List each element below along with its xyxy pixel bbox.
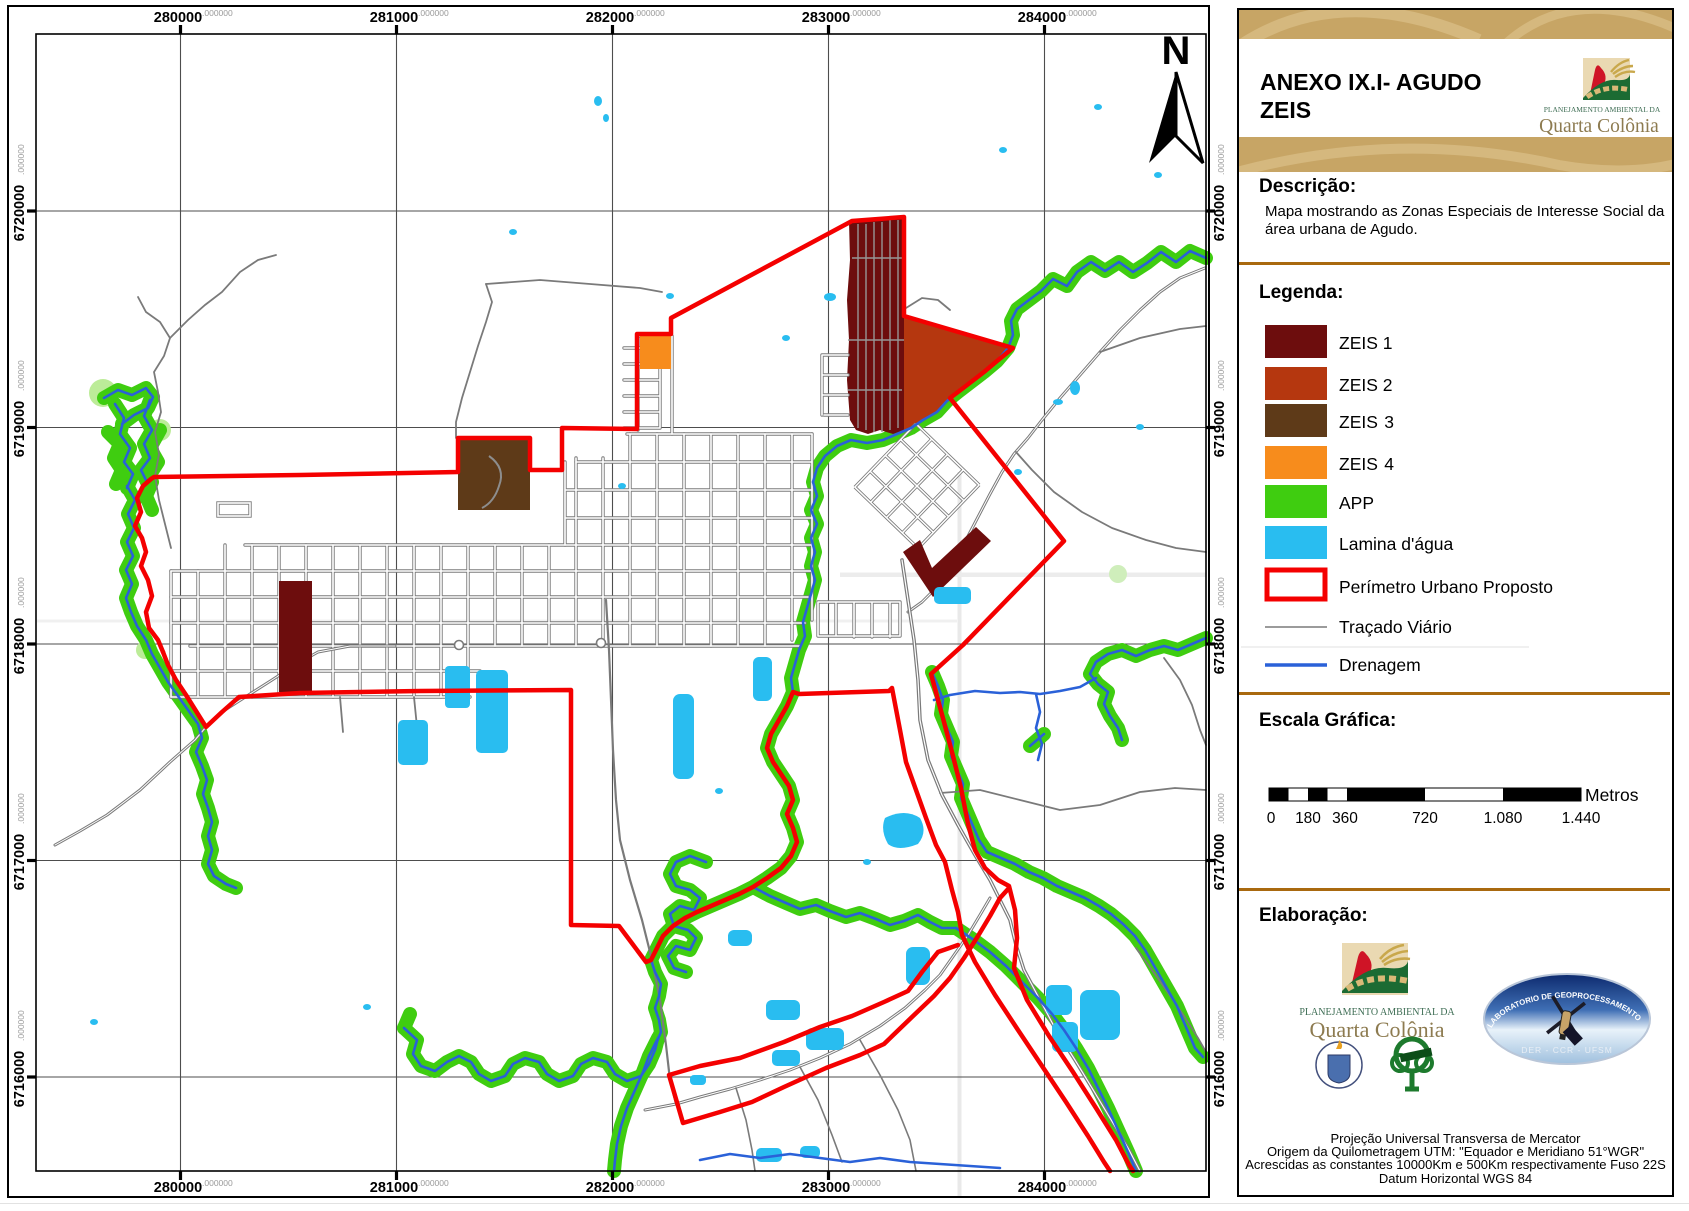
svg-text:ZEIS 3: ZEIS 3	[1339, 412, 1394, 432]
svg-text:283000: 283000	[802, 10, 850, 26]
svg-text:6716000: 6716000	[12, 1051, 28, 1107]
svg-text:6718000: 6718000	[12, 618, 28, 674]
svg-text:180: 180	[1295, 810, 1321, 827]
svg-text:.000000: .000000	[1216, 793, 1226, 824]
svg-text:281000: 281000	[370, 1180, 418, 1196]
svg-text:.000000: .000000	[16, 1010, 26, 1041]
svg-text:Traçado Viário: Traçado Viário	[1339, 617, 1452, 637]
svg-text:.000000: .000000	[202, 8, 233, 18]
svg-text:280000: 280000	[154, 10, 202, 26]
svg-text:6718000: 6718000	[1212, 618, 1228, 674]
svg-text:6720000: 6720000	[12, 185, 28, 241]
svg-text:.000000: .000000	[16, 577, 26, 608]
svg-text:.000000: .000000	[418, 1178, 449, 1188]
svg-text:280000: 280000	[154, 1180, 202, 1196]
svg-text:282000: 282000	[586, 1180, 634, 1196]
svg-text:.000000: .000000	[418, 8, 449, 18]
svg-text:6716000: 6716000	[1212, 1051, 1228, 1107]
svg-text:.000000: .000000	[1216, 144, 1226, 175]
svg-text:APP: APP	[1339, 493, 1374, 513]
svg-text:.000000: .000000	[634, 1178, 665, 1188]
svg-text:6719000: 6719000	[12, 401, 28, 457]
svg-text:720: 720	[1412, 810, 1438, 827]
svg-text:Metros: Metros	[1585, 785, 1639, 805]
svg-text:1.080: 1.080	[1484, 810, 1523, 827]
svg-text:.000000: .000000	[850, 1178, 881, 1188]
svg-text:6717000: 6717000	[1212, 834, 1228, 890]
svg-text:.000000: .000000	[16, 793, 26, 824]
svg-text:.000000: .000000	[1066, 8, 1097, 18]
svg-text:Drenagem: Drenagem	[1339, 655, 1421, 675]
svg-text:Perímetro Urbano Proposto: Perímetro Urbano Proposto	[1339, 577, 1553, 597]
svg-text:.000000: .000000	[1066, 1178, 1097, 1188]
svg-text:.000000: .000000	[850, 8, 881, 18]
svg-text:284000: 284000	[1018, 1180, 1066, 1196]
svg-text:0: 0	[1267, 810, 1276, 827]
svg-text:6719000: 6719000	[1212, 401, 1228, 457]
svg-text:.000000: .000000	[1216, 577, 1226, 608]
svg-text:6720000: 6720000	[1212, 185, 1228, 241]
svg-text:.000000: .000000	[1216, 1010, 1226, 1041]
svg-text:PLANEJAMENTO AMBIENTAL DA: PLANEJAMENTO AMBIENTAL DA	[1544, 105, 1661, 114]
svg-text:283000: 283000	[802, 1180, 850, 1196]
svg-text:284000: 284000	[1018, 10, 1066, 26]
svg-text:.000000: .000000	[1216, 360, 1226, 391]
svg-text:Lamina d'água: Lamina d'água	[1339, 534, 1454, 554]
svg-text:1.440: 1.440	[1562, 810, 1601, 827]
svg-text:Quarta Colônia: Quarta Colônia	[1539, 116, 1659, 137]
svg-text:.000000: .000000	[634, 8, 665, 18]
svg-text:N: N	[1162, 29, 1191, 73]
svg-text:DER - CCR - UFSM: DER - CCR - UFSM	[1521, 1045, 1613, 1055]
svg-text:360: 360	[1332, 810, 1358, 827]
svg-text:ZEIS 4: ZEIS 4	[1339, 454, 1394, 474]
svg-text:.000000: .000000	[202, 1178, 233, 1188]
svg-text:ZEIS 1: ZEIS 1	[1339, 333, 1393, 353]
svg-text:.000000: .000000	[16, 144, 26, 175]
svg-text:ZEIS 2: ZEIS 2	[1339, 375, 1393, 395]
svg-text:281000: 281000	[370, 10, 418, 26]
svg-text:6717000: 6717000	[12, 834, 28, 890]
svg-text:Quarta Colônia: Quarta Colônia	[1309, 1017, 1444, 1042]
svg-text:.000000: .000000	[16, 360, 26, 391]
svg-text:282000: 282000	[586, 10, 634, 26]
